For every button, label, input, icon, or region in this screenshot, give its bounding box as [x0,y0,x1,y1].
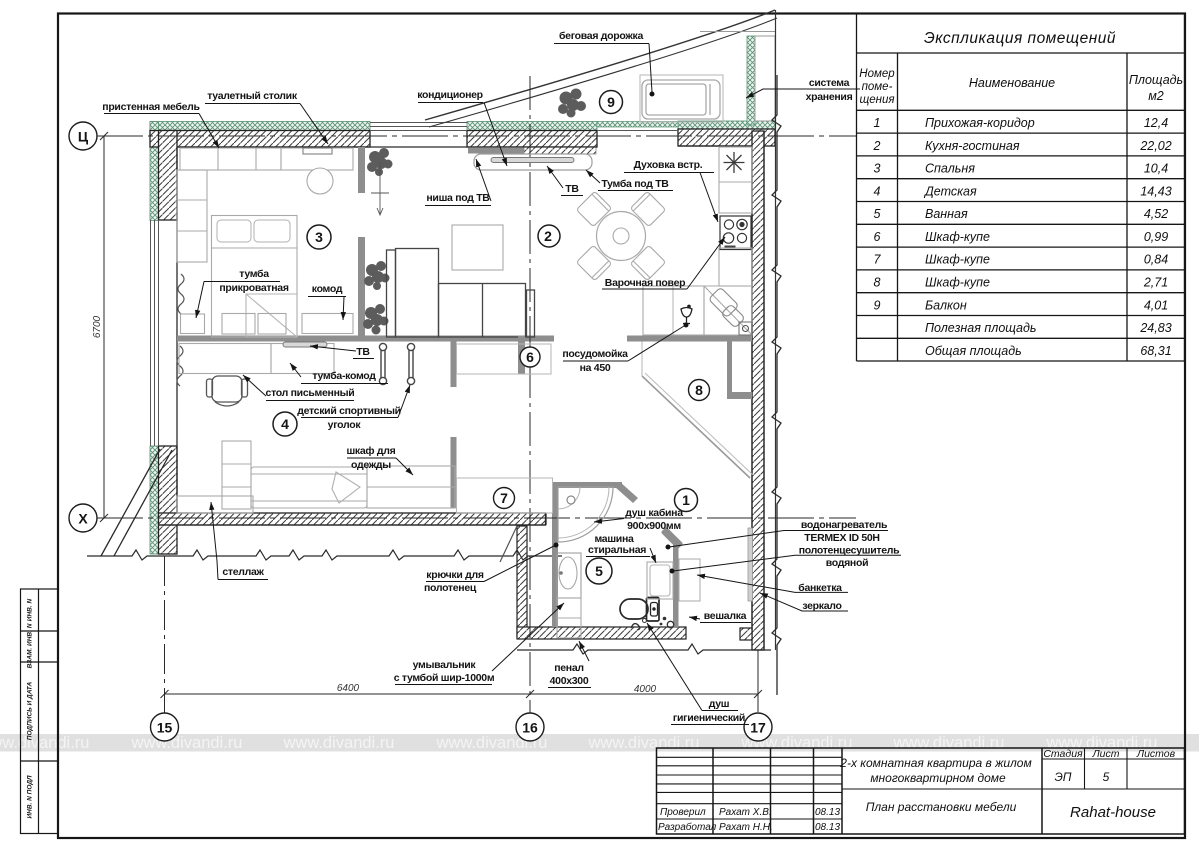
svg-text:стиральная: стиральная [588,544,646,556]
svg-text:Общая площадь: Общая площадь [925,344,1022,358]
svg-text:комод: комод [312,283,343,295]
svg-text:0,84: 0,84 [1144,253,1168,267]
svg-text:полотенец: полотенец [424,582,477,594]
svg-text:Варочная повер: Варочная повер [605,277,685,289]
svg-text:1: 1 [682,492,690,508]
svg-text:www.divandi.ru: www.divandi.ru [283,734,395,752]
svg-text:6: 6 [526,349,534,365]
svg-text:15: 15 [157,720,173,736]
svg-text:4,01: 4,01 [1144,298,1168,312]
svg-text:прикроватная: прикроватная [219,282,288,294]
svg-text:зеркало: зеркало [802,600,841,612]
svg-text:7: 7 [874,253,882,267]
svg-text:Прихожая-коридор: Прихожая-коридор [925,116,1035,130]
svg-text:туалетный столик: туалетный столик [207,90,298,102]
svg-text:посудомойка: посудомойка [562,348,628,360]
svg-text:www.divandi.ru: www.divandi.ru [893,734,1005,752]
svg-text:Номер: Номер [859,68,895,80]
svg-text:0,99: 0,99 [1144,230,1168,244]
svg-text:5: 5 [1103,770,1110,784]
svg-text:Балкон: Балкон [925,298,967,312]
svg-text:Кухня-гостиная: Кухня-гостиная [925,139,1020,153]
svg-text:68,31: 68,31 [1140,344,1171,358]
svg-text:TERMEX ID 50H: TERMEX ID 50H [804,532,879,544]
svg-text:одежды: одежды [351,459,391,471]
svg-text:беговая дорожка: беговая дорожка [559,30,643,42]
svg-text:Шкаф-купе: Шкаф-купе [925,253,990,267]
svg-text:Тумба под ТВ: Тумба под ТВ [601,178,669,190]
svg-text:гигиенический: гигиенический [673,712,745,724]
svg-text:Экспликация помещений: Экспликация помещений [924,30,1116,47]
svg-text:9: 9 [607,94,615,110]
svg-text:7: 7 [500,490,508,506]
svg-text:полотенцесушитель: полотенцесушитель [799,545,900,557]
svg-text:12,4: 12,4 [1144,116,1168,130]
svg-text:10,4: 10,4 [1144,162,1168,176]
svg-text:17: 17 [750,720,766,736]
svg-text:многоквартирном доме: многоквартирном доме [870,771,1006,785]
svg-text:ЭП: ЭП [1054,770,1071,784]
svg-text:400х300: 400х300 [550,675,589,687]
svg-text:6400: 6400 [337,683,360,694]
svg-text:2-х комнатная квартира в жилом: 2-х комнатная квартира в жилом [839,756,1031,770]
svg-text:пенал: пенал [554,662,584,674]
svg-text:пристенная мебель: пристенная мебель [102,101,200,113]
svg-text:2,71: 2,71 [1143,276,1168,290]
svg-text:щения: щения [859,94,894,106]
svg-text:на 450: на 450 [580,362,611,374]
svg-text:система: система [809,77,850,89]
svg-text:6700: 6700 [92,315,103,338]
svg-text:тумба-комод: тумба-комод [312,370,376,382]
svg-text:ниша под ТВ: ниша под ТВ [426,192,490,204]
svg-text:Полезная площадь: Полезная площадь [925,321,1036,335]
svg-text:уголок: уголок [328,419,362,431]
svg-text:Детская: Детская [923,184,977,198]
svg-text:ПОДПИСЬ И ДАТА: ПОДПИСЬ И ДАТА [27,681,34,740]
svg-text:www.divandi.ru: www.divandi.ru [0,734,89,752]
svg-text:4: 4 [281,416,289,432]
svg-text:Ванная: Ванная [925,207,968,221]
svg-text:кондиционер: кондиционер [417,89,483,101]
svg-text:8: 8 [874,276,881,290]
svg-text:Спальня: Спальня [925,162,975,176]
svg-text:стол письменный: стол письменный [266,387,355,399]
svg-text:душ: душ [709,698,730,710]
svg-text:крючки для: крючки для [426,569,484,581]
svg-text:Rahat-house: Rahat-house [1070,804,1156,821]
svg-text:душ кабина: душ кабина [625,507,683,519]
svg-text:14,43: 14,43 [1140,184,1171,198]
svg-text:16: 16 [522,720,538,736]
svg-text:4000: 4000 [634,684,657,695]
svg-text:Рахат Н.Н.: Рахат Н.Н. [719,822,773,833]
svg-text:ИНВ. N ПОДЛ: ИНВ. N ПОДЛ [27,775,34,819]
svg-text:Шкаф-купе: Шкаф-купе [925,230,990,244]
svg-text:тумба: тумба [239,268,269,280]
svg-text:900х900мм: 900х900мм [627,520,681,532]
svg-text:5: 5 [874,207,881,221]
svg-text:Разработал: Разработал [658,821,717,833]
svg-text:ИНВ. N: ИНВ. N [27,599,34,622]
svg-text:ТВ: ТВ [356,346,370,358]
svg-text:Лист: Лист [1091,748,1119,760]
svg-text:9: 9 [874,298,881,312]
svg-text:Х: Х [78,511,88,527]
svg-text:Наименование: Наименование [969,76,1055,90]
svg-text:2: 2 [544,228,552,244]
svg-text:5: 5 [595,563,603,579]
svg-text:м2: м2 [1148,89,1164,103]
svg-text:Духовка встр.: Духовка встр. [634,159,703,171]
svg-text:6: 6 [874,230,881,244]
svg-text:3: 3 [874,162,881,176]
svg-text:стеллаж: стеллаж [222,566,264,578]
svg-text:поме-: поме- [862,81,893,93]
svg-text:08.13: 08.13 [815,807,840,818]
svg-text:ВЗАМ. ИНВ. N: ВЗАМ. ИНВ. N [27,623,34,668]
svg-text:умывальник: умывальник [413,659,477,671]
svg-text:1: 1 [874,116,881,130]
svg-text:Проверил: Проверил [660,807,706,818]
svg-text:хранения: хранения [806,91,853,103]
svg-text:План расстановки мебели: План расстановки мебели [866,800,1017,814]
svg-text:4,52: 4,52 [1144,207,1168,221]
svg-text:www.divandi.ru: www.divandi.ru [131,734,243,752]
svg-text:Листов: Листов [1136,748,1176,760]
svg-text:Шкаф-купе: Шкаф-купе [925,276,990,290]
svg-text:водонагреватель: водонагреватель [801,519,888,531]
svg-text:2: 2 [873,139,881,153]
svg-text:8: 8 [695,382,703,398]
svg-text:3: 3 [315,229,323,245]
svg-text:с тумбой шир-1000м: с тумбой шир-1000м [394,672,495,684]
svg-text:Рахат Х.В.: Рахат Х.В. [719,807,772,818]
svg-text:Площадь: Площадь [1129,73,1183,87]
svg-text:Ц: Ц [78,129,89,145]
svg-text:вешалка: вешалка [704,610,747,622]
svg-text:22,02: 22,02 [1139,139,1171,153]
svg-text:08.13: 08.13 [815,822,840,833]
svg-text:водяной: водяной [826,557,869,569]
svg-text:шкаф для: шкаф для [346,445,395,457]
svg-text:Стадия: Стадия [1043,748,1083,760]
svg-text:ТВ: ТВ [565,183,579,195]
svg-text:4: 4 [874,184,881,198]
svg-text:www.divandi.ru: www.divandi.ru [588,734,700,752]
svg-text:24,83: 24,83 [1139,321,1171,335]
svg-text:детский спортивный: детский спортивный [297,405,401,417]
